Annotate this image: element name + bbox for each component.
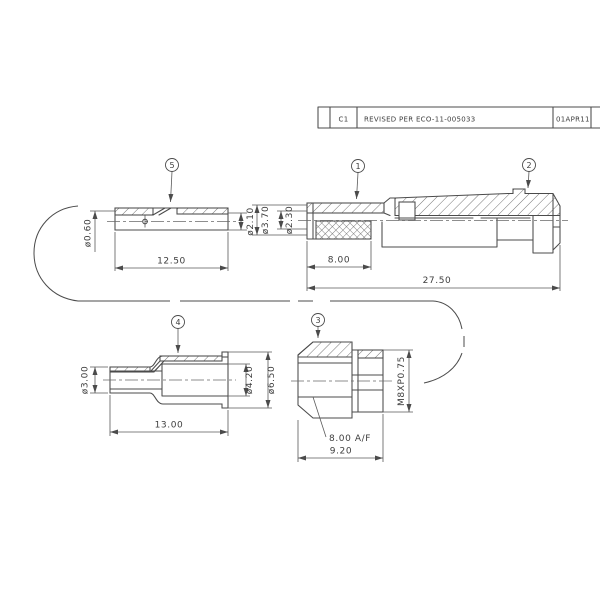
item5-hatch-right <box>177 208 228 214</box>
view-item4: ø3.00 ø4.20 ø6.50 13.00 4 <box>81 316 278 437</box>
view-item3: M8XP0.75 8.00 A/F 9.20 3 <box>291 314 413 463</box>
balloon-item4-number: 4 <box>175 318 180 327</box>
item3-extension-lines <box>298 350 413 462</box>
balloon-item5-number: 5 <box>169 161 174 170</box>
balloon-item3: 3 <box>312 314 325 339</box>
item5-dim-length: 12.50 <box>157 257 186 267</box>
item4-dim-entry-od: ø3.00 <box>81 366 91 395</box>
item4-dim-length: 13.00 <box>155 421 184 431</box>
item5-hatch-left <box>115 208 153 215</box>
view-assembly: ø3.70 ø2.30 8.00 27.50 1 2 <box>252 159 568 292</box>
drawing-svg: C1 REVISED PER ECO-11-005033 01APR11 12.… <box>0 0 600 600</box>
revision-rev-cell: C1 <box>339 116 349 124</box>
assembly-dim-crimp-length: 8.00 <box>328 256 350 266</box>
item3-hatch-hex <box>298 342 352 357</box>
item5-dim-od: ø2.10 <box>246 207 256 236</box>
assembly-dim-overall: 27.50 <box>423 276 452 286</box>
item4-dim-bore: ø4.20 <box>245 366 255 395</box>
drawing-sheet: C1 REVISED PER ECO-11-005033 01APR11 12.… <box>0 0 600 600</box>
balloon-item2-leader <box>528 172 529 189</box>
balloon-item5: 5 <box>166 159 179 203</box>
assembly-ferrule-hatch <box>307 203 384 213</box>
revision-description-cell: REVISED PER ECO-11-005033 <box>364 116 476 124</box>
item5-dim-crimp-dia: ø0.60 <box>84 219 94 248</box>
balloon-item1-leader <box>357 173 359 200</box>
item3-dim-hex-af: 8.00 A/F <box>329 434 371 444</box>
balloon-item1-number: 1 <box>355 162 360 171</box>
balloon-item2: 2 <box>523 159 536 189</box>
assembly-body-hatch <box>395 189 560 216</box>
assembly-dim-ferrule-od: ø3.70 <box>261 206 271 235</box>
assembly-dim-entry-id: ø2.30 <box>285 206 295 235</box>
balloon-item5-leader <box>171 172 173 203</box>
item3-dim-length: 9.20 <box>330 447 352 457</box>
item4-hatch-body <box>160 356 222 361</box>
balloon-item2-number: 2 <box>526 161 531 170</box>
balloon-item3-number: 3 <box>315 316 320 325</box>
item4-dim-od: ø6.50 <box>267 366 277 395</box>
item4-hatch-flange <box>222 352 228 357</box>
view-item5: 12.50 ø0.60 ø2.10 5 <box>84 159 257 272</box>
item3-hex-leader <box>313 397 326 437</box>
revision-block: C1 REVISED PER ECO-11-005033 01APR11 <box>318 107 600 128</box>
balloon-item1: 1 <box>352 160 365 200</box>
assembly-knurl-crimp <box>316 221 371 239</box>
balloon-item4: 4 <box>172 316 185 354</box>
assembly-contact-block <box>399 202 415 220</box>
item3-hatch-thread <box>358 350 383 358</box>
item3-dim-thread: M8XP0.75 <box>397 356 407 406</box>
revision-date-cell: 01APR11 <box>556 116 590 124</box>
